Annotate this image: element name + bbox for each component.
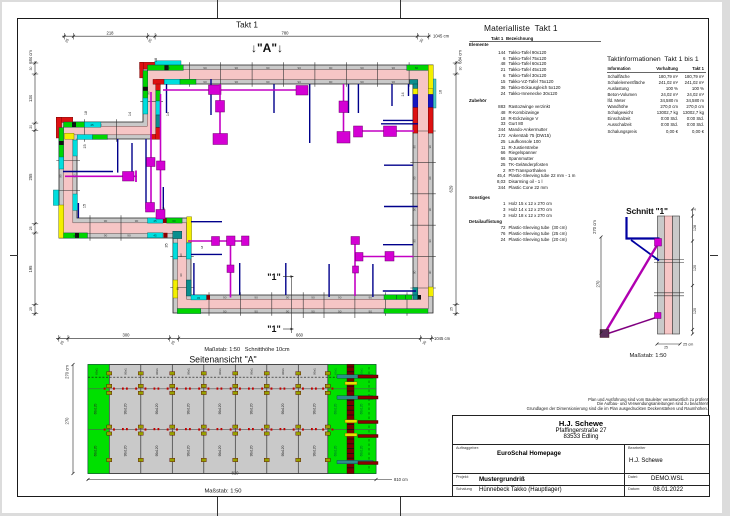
svg-text:270 cm: 270 cm [592, 220, 597, 234]
svg-text:60x120: 60x120 [360, 445, 364, 456]
svg-text:60x120: 60x120 [334, 445, 338, 456]
svg-text:90: 90 [428, 145, 432, 149]
svg-text:218: 218 [107, 31, 115, 36]
svg-text:90: 90 [428, 239, 432, 243]
svg-text:18: 18 [84, 111, 88, 115]
svg-text:90x1: 90x1 [186, 368, 190, 375]
svg-text:25: 25 [450, 307, 454, 311]
svg-text:60x1: 60x1 [360, 368, 364, 375]
svg-text:"1": "1" [267, 324, 281, 334]
svg-text:90: 90 [254, 296, 258, 300]
svg-text:810: 810 [232, 471, 240, 476]
svg-text:90: 90 [104, 219, 108, 223]
svg-text:90x120: 90x120 [123, 403, 127, 414]
svg-text:90: 90 [223, 309, 227, 313]
svg-text:30: 30 [419, 38, 424, 43]
svg-text:90: 90 [311, 296, 315, 300]
svg-text:3: 3 [693, 208, 697, 210]
svg-text:660: 660 [296, 333, 304, 338]
svg-text:14: 14 [166, 112, 170, 116]
svg-text:90: 90 [428, 270, 432, 274]
svg-text:↓"A"↓: ↓"A"↓ [251, 41, 283, 55]
svg-text:128: 128 [693, 225, 697, 231]
svg-text:90: 90 [360, 66, 364, 70]
svg-text:90: 90 [413, 145, 417, 149]
svg-text:90: 90 [286, 296, 290, 300]
svg-text:120: 120 [693, 265, 697, 271]
svg-text:90: 90 [179, 273, 183, 277]
svg-text:90: 90 [286, 309, 290, 313]
svg-text:90: 90 [413, 239, 417, 243]
svg-text:684 cm: 684 cm [458, 50, 463, 64]
svg-text:90x1: 90x1 [155, 368, 159, 375]
svg-text:90x120: 90x120 [123, 445, 127, 456]
svg-text:270: 270 [596, 280, 601, 288]
svg-text:Schnitt "1": Schnitt "1" [626, 206, 668, 216]
svg-text:"1": "1" [267, 272, 281, 282]
svg-text:25: 25 [29, 307, 33, 311]
svg-text:30: 30 [459, 67, 463, 71]
svg-text:90x120: 90x120 [155, 403, 159, 414]
svg-text:90: 90 [329, 66, 333, 70]
svg-text:60: 60 [72, 123, 76, 127]
svg-text:1045 cm: 1045 cm [434, 336, 451, 341]
svg-text:90: 90 [59, 174, 63, 178]
svg-text:25: 25 [59, 340, 64, 345]
svg-text:90: 90 [368, 296, 372, 300]
svg-text:14: 14 [128, 112, 132, 116]
svg-text:90: 90 [413, 176, 417, 180]
svg-text:60x1: 60x1 [334, 368, 338, 375]
svg-text:90x1: 90x1 [249, 368, 253, 375]
svg-text:90: 90 [203, 80, 207, 84]
svg-text:90: 90 [428, 208, 432, 212]
svg-text:30: 30 [29, 67, 33, 71]
svg-text:90: 90 [235, 80, 239, 84]
svg-text:Maßstab: 1:50 Schnitthöhe 10: Maßstab: 1:50 Schnitthöhe 10cm [204, 347, 290, 353]
svg-text:255: 255 [28, 173, 33, 181]
svg-text:Takt 1: Takt 1 [236, 21, 258, 30]
svg-text:90: 90 [127, 234, 131, 238]
svg-text:90: 90 [223, 296, 227, 300]
svg-text:90: 90 [235, 66, 239, 70]
svg-text:20: 20 [147, 38, 152, 43]
svg-text:25: 25 [170, 340, 175, 345]
svg-text:60x120: 60x120 [360, 403, 364, 414]
svg-text:45: 45 [153, 219, 157, 223]
svg-text:90x120: 90x120 [186, 403, 190, 414]
svg-text:90x120: 90x120 [249, 445, 253, 456]
svg-text:18: 18 [154, 58, 158, 62]
svg-text:90: 90 [368, 309, 372, 313]
svg-text:90: 90 [266, 66, 270, 70]
svg-text:60: 60 [415, 66, 419, 70]
svg-text:5: 5 [162, 207, 164, 211]
svg-text:810 cm: 810 cm [394, 477, 408, 482]
svg-text:90: 90 [329, 80, 333, 84]
svg-text:90: 90 [297, 66, 301, 70]
svg-text:90x1: 90x1 [123, 368, 127, 375]
svg-text:15: 15 [83, 144, 87, 148]
svg-text:30: 30 [422, 340, 427, 345]
svg-text:90: 90 [254, 309, 258, 313]
svg-text:270: 270 [65, 417, 70, 425]
svg-text:20: 20 [29, 125, 33, 129]
svg-text:90x120: 90x120 [218, 403, 222, 414]
svg-text:60: 60 [166, 66, 170, 70]
svg-text:90x120: 90x120 [312, 445, 316, 456]
svg-text:90x120: 90x120 [186, 445, 190, 456]
svg-text:16: 16 [439, 90, 443, 94]
svg-text:60x120: 60x120 [94, 445, 98, 456]
svg-text:90: 90 [360, 80, 364, 84]
svg-text:90: 90 [311, 309, 315, 313]
svg-text:5: 5 [176, 287, 178, 291]
svg-text:Maßstab: 1:50: Maßstab: 1:50 [204, 488, 241, 494]
svg-text:90: 90 [135, 219, 139, 223]
svg-text:Seitenansicht "A": Seitenansicht "A" [189, 354, 256, 364]
svg-text:300: 300 [123, 333, 131, 338]
svg-text:45: 45 [90, 123, 94, 127]
svg-text:1045 cm: 1045 cm [433, 34, 450, 39]
svg-text:Maßstab: 1:50: Maßstab: 1:50 [629, 353, 666, 359]
svg-text:90x120: 90x120 [312, 403, 316, 414]
svg-text:90: 90 [104, 234, 108, 238]
svg-text:134: 134 [28, 94, 33, 102]
svg-text:60: 60 [73, 234, 77, 238]
svg-text:90: 90 [297, 80, 301, 84]
svg-text:5: 5 [201, 246, 203, 250]
svg-text:90: 90 [266, 80, 270, 84]
svg-text:25 cm: 25 cm [683, 343, 693, 347]
svg-text:90: 90 [392, 66, 396, 70]
svg-text:780: 780 [282, 31, 290, 36]
svg-text:35: 35 [165, 243, 169, 247]
svg-text:45: 45 [197, 296, 201, 300]
svg-text:90x120: 90x120 [281, 445, 285, 456]
svg-text:270 cm: 270 cm [65, 365, 70, 379]
svg-text:90x120: 90x120 [249, 403, 253, 414]
svg-text:60: 60 [172, 219, 176, 223]
svg-text:45: 45 [153, 234, 157, 238]
svg-text:90: 90 [413, 270, 417, 274]
svg-text:90: 90 [338, 309, 342, 313]
svg-text:195: 195 [28, 265, 33, 273]
svg-text:25: 25 [64, 38, 69, 43]
svg-text:90: 90 [203, 66, 207, 70]
svg-text:90x120: 90x120 [218, 445, 222, 456]
svg-text:15: 15 [83, 204, 87, 208]
svg-text:90x1: 90x1 [218, 368, 222, 375]
svg-text:120: 120 [693, 308, 697, 314]
svg-text:684 cm: 684 cm [28, 50, 33, 64]
svg-text:90x1: 90x1 [281, 368, 285, 375]
svg-text:90: 90 [338, 296, 342, 300]
svg-text:90: 90 [428, 176, 432, 180]
svg-text:90x120: 90x120 [281, 403, 285, 414]
svg-text:90x120: 90x120 [155, 445, 159, 456]
svg-text:60x120: 60x120 [94, 403, 98, 414]
svg-text:25: 25 [664, 346, 668, 350]
svg-text:60x1: 60x1 [95, 368, 99, 375]
svg-text:90x1: 90x1 [312, 368, 316, 375]
svg-text:60x120: 60x120 [334, 403, 338, 414]
svg-text:90: 90 [392, 80, 396, 84]
svg-text:14: 14 [401, 92, 405, 96]
svg-text:25: 25 [29, 226, 33, 230]
svg-text:90: 90 [179, 253, 183, 257]
svg-text:629: 629 [449, 185, 454, 193]
svg-text:90: 90 [413, 208, 417, 212]
